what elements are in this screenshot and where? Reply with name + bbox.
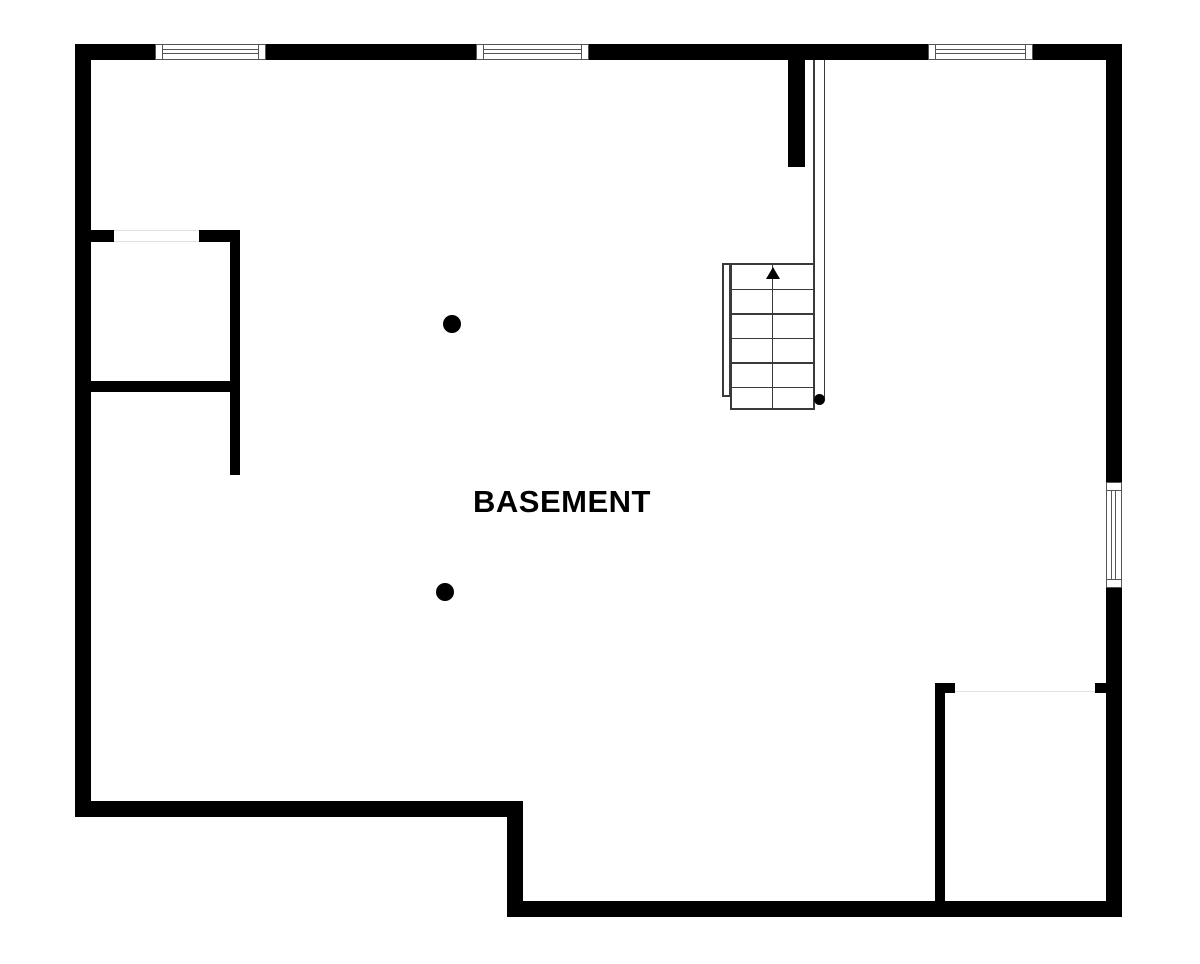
window-glass-line <box>1115 491 1116 579</box>
stair-rail-line-right <box>824 60 826 398</box>
window-glass-line <box>484 53 581 54</box>
window-frame-line <box>258 45 259 59</box>
exterior-wall-step <box>507 801 523 917</box>
window-frame-line <box>162 45 163 59</box>
window-glass-line <box>163 49 258 50</box>
window-glass-line <box>936 49 1025 50</box>
column-1 <box>443 315 461 333</box>
stairs-up-arrow-icon <box>766 267 780 279</box>
window-frame-line <box>1107 579 1121 580</box>
window-frame-line <box>1025 45 1026 59</box>
window-glass-line <box>1111 491 1112 579</box>
window-top-1 <box>155 44 266 60</box>
window-frame-line <box>483 45 484 59</box>
storage-door-opening <box>114 230 199 242</box>
window-frame-line <box>581 45 582 59</box>
window-top-3 <box>928 44 1033 60</box>
stair-center-line <box>772 265 774 408</box>
storage-wall-middle <box>91 381 240 392</box>
window-glass-line <box>484 49 581 50</box>
storage-wall-top-left-segment <box>91 230 114 242</box>
bottom-right-room-wall-cap <box>935 683 955 693</box>
window-glass-line <box>936 53 1025 54</box>
room-label: BASEMENT <box>473 484 651 520</box>
exterior-wall-right <box>1106 44 1122 917</box>
stair-newel-dot <box>814 394 825 405</box>
storage-wall-right <box>230 230 240 475</box>
basement-floor-plan: BASEMENT <box>0 0 1200 964</box>
column-2 <box>436 583 454 601</box>
window-frame-line <box>1107 490 1121 491</box>
stair-wall-stub <box>788 60 805 167</box>
bottom-right-room-opening-line <box>955 691 1095 692</box>
bottom-right-room-wall-left <box>935 683 945 903</box>
window-right <box>1106 482 1122 588</box>
window-top-2 <box>476 44 589 60</box>
exterior-wall-left <box>75 44 91 817</box>
exterior-wall-bottom <box>507 901 1121 917</box>
bottom-right-room-wall-stub <box>1095 683 1106 693</box>
staircase <box>730 263 815 410</box>
window-frame-line <box>935 45 936 59</box>
window-glass-line <box>163 53 258 54</box>
exterior-wall-bottom-left <box>75 801 523 817</box>
